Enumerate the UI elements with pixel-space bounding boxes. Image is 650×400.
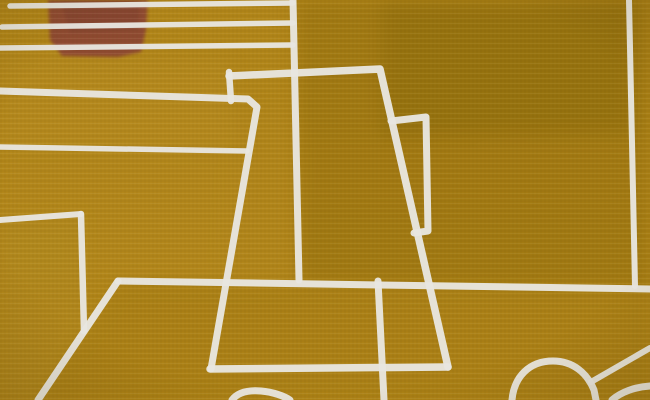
- painting-photo: [0, 0, 650, 400]
- photo-vignette: [0, 0, 650, 400]
- painting-svg: [0, 0, 650, 400]
